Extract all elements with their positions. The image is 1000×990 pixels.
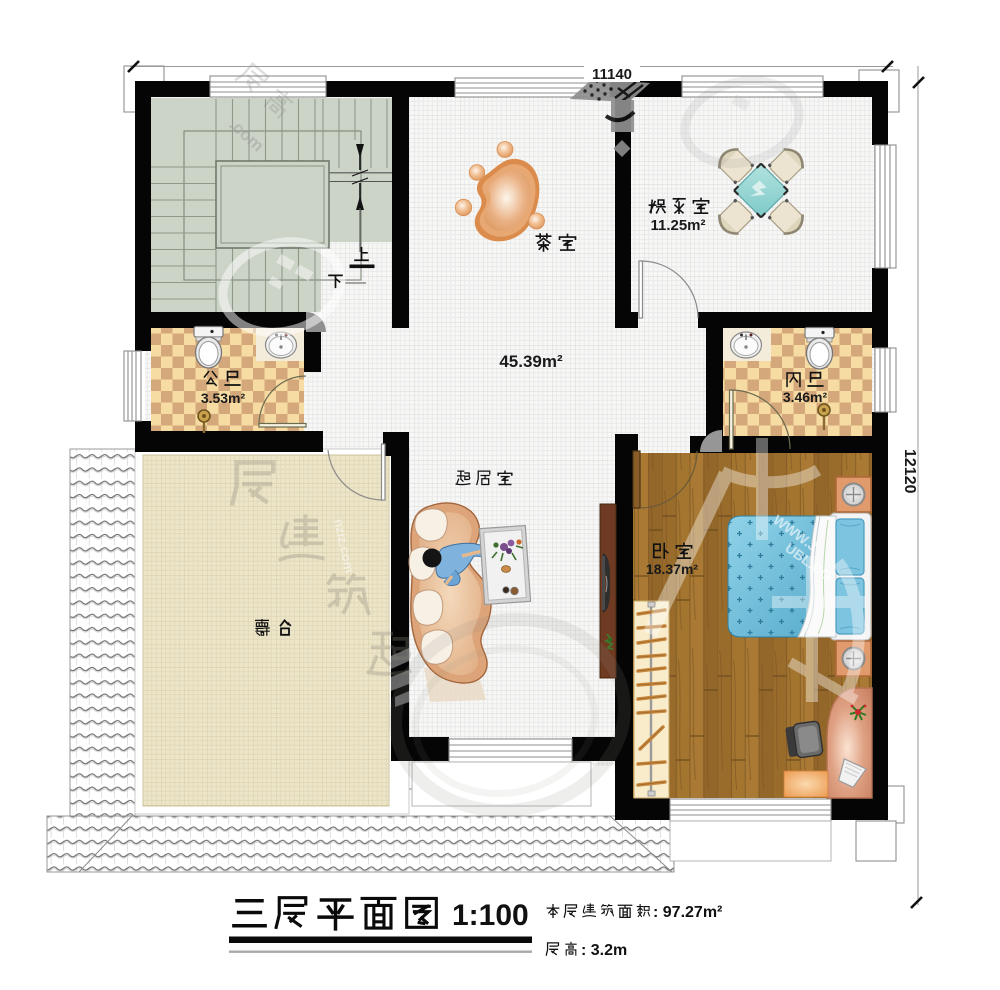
svg-text:3.53m²: 3.53m²	[201, 390, 246, 406]
svg-text:45.39m²: 45.39m²	[499, 352, 563, 371]
svg-text:12120: 12120	[901, 449, 918, 494]
svg-text:1:100: 1:100	[452, 899, 529, 932]
svg-text:18.37m²: 18.37m²	[646, 561, 698, 577]
svg-text:: 97.27m²: : 97.27m²	[653, 904, 722, 921]
svg-text:11140: 11140	[592, 66, 632, 83]
svg-text:3.46m²: 3.46m²	[783, 389, 828, 405]
svg-text:11.25m²: 11.25m²	[650, 217, 705, 234]
svg-text:: 3.2m: : 3.2m	[581, 942, 627, 959]
